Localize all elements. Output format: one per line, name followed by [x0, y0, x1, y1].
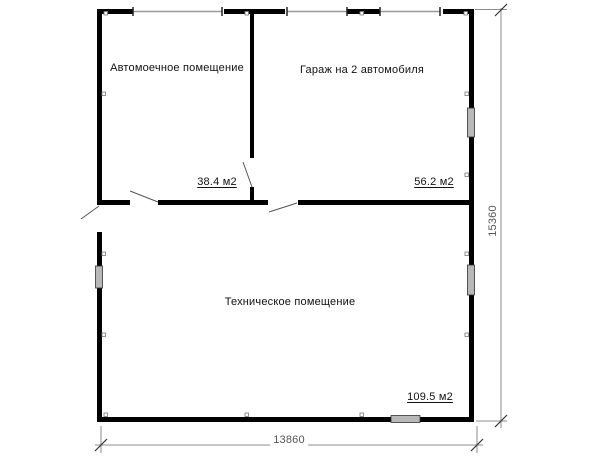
wall-marker: [104, 413, 108, 417]
wall-marker: [465, 252, 469, 256]
wall-marker: [464, 12, 468, 16]
area-label-carwash: 38.4 м2: [197, 176, 237, 188]
wall-marker: [245, 12, 249, 16]
wall-divider-stub: [250, 187, 254, 205]
room-label-technical: Техническое помещение: [225, 296, 356, 308]
wall-marker: [465, 333, 469, 337]
wall-marker: [465, 173, 469, 177]
wall-divider-upper: [250, 9, 254, 158]
room-label-carwash: Автомоечное помещение: [110, 62, 244, 74]
gate-openings: [133, 7, 440, 16]
wall-marker: [360, 12, 364, 16]
wall-marker: [360, 413, 364, 417]
area-label-garage: 56.2 м2: [414, 176, 454, 188]
window-right-lower: [468, 265, 475, 295]
wall-top-left: [97, 9, 133, 14]
windows: [96, 108, 475, 423]
dimension-width-label: 13860: [270, 434, 308, 446]
floor-plan-canvas: Автомоечное помещение Гараж на 2 автомоб…: [0, 0, 600, 458]
wall-right: [469, 9, 474, 422]
door-leaf-exterior-left: [81, 206, 99, 219]
wall-marker: [245, 413, 249, 417]
wall-left-upper: [97, 9, 102, 205]
door-swings: [81, 162, 297, 219]
door-leaf-carwash-tech: [130, 191, 158, 202]
window-bottom: [391, 416, 420, 423]
wall-marker: [465, 92, 469, 96]
door-leaf-carwash-garage: [243, 162, 252, 187]
wall-top-mid: [224, 9, 285, 14]
wall-left-lower: [97, 232, 102, 422]
door-leaf-garage-tech: [269, 203, 297, 212]
wall-marker: [102, 252, 106, 256]
wall-marker: [104, 12, 108, 16]
wall-marker: [102, 92, 106, 96]
window-right-upper: [468, 108, 475, 137]
wall-marker: [102, 333, 106, 337]
wall-mid-right: [298, 200, 474, 205]
wall-mid-left: [97, 200, 130, 205]
dimension-height-label: 15360: [487, 202, 499, 240]
window-left: [96, 266, 103, 288]
room-label-garage: Гараж на 2 автомобиля: [300, 64, 424, 76]
area-label-technical: 109.5 м2: [407, 391, 453, 403]
